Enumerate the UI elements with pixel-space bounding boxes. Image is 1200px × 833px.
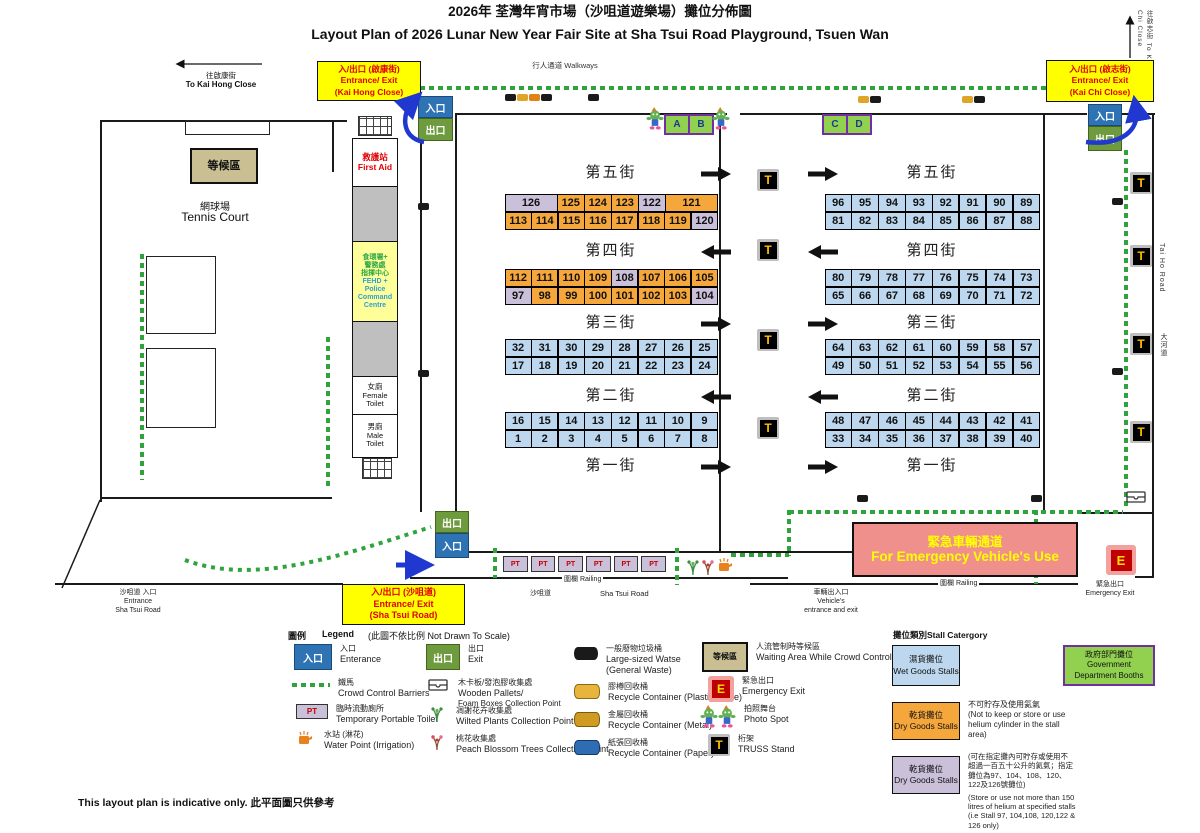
mascot-icon bbox=[718, 704, 736, 734]
legend-pt-icon: PT bbox=[296, 704, 328, 719]
stall-91: 91 bbox=[959, 194, 986, 213]
stall-80: 80 bbox=[825, 269, 852, 288]
legend-exit-zh: 出口 bbox=[468, 644, 484, 654]
stall-64: 64 bbox=[825, 339, 852, 358]
tai-ho-road-en: Tai Ho Road bbox=[1158, 243, 1165, 303]
legend-truss-t: T bbox=[711, 737, 728, 754]
legend-water-en: Water Point (Irrigation) bbox=[324, 740, 414, 751]
stall-117: 117 bbox=[611, 212, 638, 231]
stall-116: 116 bbox=[584, 212, 611, 231]
category-wet-zh: 濕貨攤位 bbox=[893, 654, 959, 665]
stall-69: 69 bbox=[932, 287, 959, 306]
door-entrance-topleft: 入口 bbox=[418, 96, 453, 118]
category-wet-goods: 濕貨攤位 Wet Goods Stalls bbox=[892, 645, 960, 686]
legend-pallets-zh: 木卡板/發泡膠收集處 bbox=[458, 678, 561, 688]
street-arrow bbox=[701, 390, 731, 409]
stall-row: 4950515253545556 bbox=[825, 357, 1040, 375]
stall-56: 56 bbox=[1013, 357, 1040, 376]
stall-23: 23 bbox=[664, 357, 691, 376]
entrance-sha-tsui-box: 入/出口 (沙咀道) Entrance/ Exit (Sha Tsui Road… bbox=[342, 584, 465, 625]
stall-row: 113114115116117118119120 bbox=[505, 212, 718, 230]
stall-grid-left-第三街: 32313029282726251718192021222324 bbox=[505, 339, 718, 375]
stall-53: 53 bbox=[932, 357, 959, 376]
legend-pallets-en1: Wooden Pallets/ bbox=[458, 688, 561, 699]
stall-88: 88 bbox=[1013, 212, 1040, 231]
legend-emergency-en: Emergency Exit bbox=[742, 686, 805, 697]
stall-row: 4847464544434241 bbox=[825, 412, 1040, 430]
legend-wilted: 凋謝花卉收集處Wilted Plants Collection Point bbox=[430, 706, 574, 728]
female-toilet: 女廁 Female Toilet bbox=[352, 376, 398, 416]
legend-peach-icon bbox=[430, 734, 448, 756]
street-direction-arrow-right bbox=[701, 167, 731, 186]
water-point-icon bbox=[716, 557, 733, 578]
stall-124: 124 bbox=[584, 194, 612, 213]
wall-segment bbox=[1135, 576, 1154, 578]
waiting-area-box: 等候區 bbox=[190, 148, 258, 184]
door-exit-bottomleft: 出口 bbox=[435, 511, 469, 533]
trash-bin-icon bbox=[541, 94, 552, 101]
crowd-barrier-line bbox=[1124, 150, 1128, 506]
stall-111: 111 bbox=[531, 269, 558, 288]
trash-bin-icon bbox=[962, 96, 973, 103]
legend-waste: 一般廢物垃圾桶Large-sized Watse(General Waste) bbox=[574, 644, 681, 677]
truss-stand: T bbox=[1130, 333, 1152, 355]
dry2-en-3: (i.e Stall 97, 104,108, 120,122 & bbox=[968, 811, 1128, 820]
legend-plastic-bin-icon bbox=[574, 684, 600, 699]
entrance-sha-tsui-left-label: 沙咀道 入口 Entrance Sha Tsui Road bbox=[100, 588, 176, 615]
crowd-barrier-line bbox=[675, 548, 679, 585]
stall-row: 8079787776757473 bbox=[825, 269, 1040, 287]
legend-barrier-icon bbox=[292, 683, 330, 687]
stall-100: 100 bbox=[584, 287, 611, 306]
stall-98: 98 bbox=[531, 287, 558, 306]
street-direction-arrow-right bbox=[808, 317, 838, 336]
truss-stand-t: T bbox=[1133, 175, 1150, 192]
legend-pt: PT 臨時流動廁所Temporary Portable Toilet bbox=[296, 704, 438, 725]
stall-40: 40 bbox=[1013, 430, 1040, 449]
vehicle-l1: 車輛出入口 bbox=[790, 588, 872, 597]
stall-108: 108 bbox=[611, 269, 638, 288]
footer-disclaimer: This layout plan is indicative only. 此平面… bbox=[78, 795, 335, 810]
wall-segment bbox=[750, 583, 1078, 585]
stall-73: 73 bbox=[1013, 269, 1040, 288]
stall-51: 51 bbox=[878, 357, 905, 376]
fehd-en-3: Command bbox=[353, 294, 397, 302]
crowd-barrier-line bbox=[140, 254, 144, 480]
stall-99: 99 bbox=[558, 287, 585, 306]
legend-water-zh: 水站 (淋花) bbox=[324, 730, 414, 740]
entrance-kai-chi-line1: 入/出口 (啟志街) bbox=[1047, 64, 1153, 75]
stall-16: 16 bbox=[505, 412, 532, 431]
stall-39: 39 bbox=[986, 430, 1013, 449]
crowd-barrier-line bbox=[420, 86, 1150, 90]
truss-stand: T bbox=[1130, 172, 1152, 194]
stall-1: 1 bbox=[505, 430, 532, 449]
category-dry2-en: Dry Goods Stalls bbox=[893, 775, 959, 786]
legend-waiting-icon: 等候區 bbox=[702, 642, 748, 672]
stall-20: 20 bbox=[584, 357, 611, 376]
stall-45: 45 bbox=[905, 412, 932, 431]
street-label: 第三街 bbox=[887, 311, 977, 332]
stall-48: 48 bbox=[825, 412, 852, 431]
stall-109: 109 bbox=[584, 269, 611, 288]
crowd-barrier-line bbox=[787, 510, 791, 556]
stall-15: 15 bbox=[531, 412, 558, 431]
truss-stand: T bbox=[757, 169, 779, 191]
legend-emergency-zh: 緊急出口 bbox=[742, 676, 805, 686]
stall-101: 101 bbox=[611, 287, 638, 306]
fehd-en-1: FEHD + bbox=[353, 278, 397, 286]
stall-12: 12 bbox=[611, 412, 638, 431]
street-direction-arrow-left bbox=[808, 245, 838, 264]
stall-19: 19 bbox=[558, 357, 585, 376]
stall-32: 32 bbox=[505, 339, 532, 358]
wall-segment bbox=[100, 497, 332, 499]
stall-11: 11 bbox=[638, 412, 665, 431]
legend-water-icon bbox=[296, 730, 316, 751]
stall-107: 107 bbox=[638, 269, 665, 288]
vehicle-l3: entrance and exit bbox=[790, 606, 872, 615]
stall-grid-left-第二街: 16151413121110912345678 bbox=[505, 412, 718, 448]
legend-photo-icon bbox=[700, 704, 736, 734]
stall-41: 41 bbox=[1013, 412, 1040, 431]
wilted-plants-point-icon bbox=[686, 559, 700, 581]
stall-123: 123 bbox=[611, 194, 639, 213]
legend-pt-zh: 臨時流動廁所 bbox=[336, 704, 438, 714]
stall-row: 979899100101102103104 bbox=[505, 287, 718, 305]
wall-segment bbox=[740, 113, 1087, 115]
stall-82: 82 bbox=[851, 212, 878, 231]
legend-waiting-zh: 人流管制時等候區 bbox=[756, 642, 892, 652]
dry2-en-2: litres of helium at specified stalls bbox=[968, 802, 1128, 811]
male-toilet: 男廁 Male Toilet bbox=[352, 414, 398, 458]
stall-grid-left-第五街: 1261251241231221211131141151161171181191… bbox=[505, 194, 718, 230]
first-aid-station: 救護站 First Aid bbox=[352, 138, 398, 188]
stall-22: 22 bbox=[638, 357, 665, 376]
legend-wilted-zh: 凋謝花卉收集處 bbox=[456, 706, 574, 716]
category-gov-en2: Department Booths bbox=[1065, 671, 1153, 681]
wall-segment bbox=[1152, 113, 1154, 577]
sha-tsui-road-en: Sha Tsui Road bbox=[600, 589, 649, 599]
truss-stand-t: T bbox=[1133, 248, 1150, 265]
stall-grid-right-第四街: 80797877767574736566676869707172 bbox=[825, 269, 1040, 305]
fehd-en-2: Police bbox=[353, 286, 397, 294]
stall-126: 126 bbox=[505, 194, 558, 213]
stall-7: 7 bbox=[664, 430, 691, 449]
trash-bin-icon bbox=[858, 96, 869, 103]
mascot-icon bbox=[700, 704, 718, 734]
stall-57: 57 bbox=[1013, 339, 1040, 358]
stall-row: 161514131211109 bbox=[505, 412, 718, 430]
entrance-sha-tsui-l1: 沙咀道 入口 bbox=[100, 588, 176, 597]
stall-120: 120 bbox=[691, 212, 718, 231]
stall-122: 122 bbox=[638, 194, 666, 213]
stall-10: 10 bbox=[664, 412, 691, 431]
sha-tsui-road-zh: 沙咀道 bbox=[530, 589, 551, 598]
legend-paper-zh: 紙張回收桶 bbox=[608, 738, 714, 748]
stall-row: 6463626160595857 bbox=[825, 339, 1040, 357]
stall-18: 18 bbox=[531, 357, 558, 376]
stall-67: 67 bbox=[878, 287, 905, 306]
door-exit-topright: 出口 bbox=[1088, 126, 1122, 151]
portable-toilet: PT bbox=[531, 556, 556, 572]
truss-stand-t: T bbox=[760, 332, 777, 349]
stall-119: 119 bbox=[664, 212, 691, 231]
mascot-photo-spot-2 bbox=[712, 106, 730, 136]
stall-35: 35 bbox=[878, 430, 905, 449]
stall-93: 93 bbox=[905, 194, 932, 213]
stall-70: 70 bbox=[959, 287, 986, 306]
stall-29: 29 bbox=[584, 339, 611, 358]
stall-61: 61 bbox=[905, 339, 932, 358]
portable-toilet: PT bbox=[558, 556, 583, 572]
court-outline bbox=[146, 348, 216, 428]
entrance-sha-tsui-l2: Entrance bbox=[100, 597, 176, 606]
category-gov-booths: 政府部門攤位 Government Department Booths bbox=[1063, 645, 1155, 686]
stall-86: 86 bbox=[959, 212, 986, 231]
legend-truss-zh: 桁架 bbox=[738, 734, 795, 744]
legend-metal-bin-icon bbox=[574, 712, 600, 727]
street-direction-arrow-left bbox=[701, 390, 731, 409]
gray-block-2 bbox=[352, 321, 398, 378]
stall-96: 96 bbox=[825, 194, 852, 213]
legend-entrance-icon: 入口 bbox=[294, 644, 332, 670]
legend-truss-en: TRUSS Stand bbox=[738, 744, 795, 755]
truss-stand: T bbox=[757, 417, 779, 439]
railing-label-left: 圍欄 Railing bbox=[562, 575, 603, 584]
street-direction-arrow-right bbox=[808, 167, 838, 186]
category-wet-en: Wet Goods Stalls bbox=[893, 666, 959, 677]
page-title-en: Layout Plan of 2026 Lunar New Year Fair … bbox=[0, 26, 1200, 42]
stall-13: 13 bbox=[584, 412, 611, 431]
legend-emergency: E 緊急出口Emergency Exit bbox=[708, 676, 805, 702]
gov-booths-ab: A B bbox=[666, 114, 714, 135]
trash-bin-icon bbox=[1031, 495, 1042, 502]
stall-37: 37 bbox=[932, 430, 959, 449]
category-gov-en1: Government bbox=[1065, 660, 1153, 670]
entrance-sha-tsui-line1: 入/出口 (沙咀道) bbox=[343, 587, 464, 599]
street-label: 第四街 bbox=[887, 239, 977, 260]
stall-2: 2 bbox=[531, 430, 558, 449]
court-outline bbox=[185, 120, 270, 135]
legend-emergency-icon: E bbox=[708, 676, 734, 702]
entrance-kai-hong-line1: 入/出口 (啟康街) bbox=[318, 64, 420, 75]
street-label: 第五街 bbox=[887, 161, 977, 182]
wall-segment bbox=[55, 583, 343, 585]
stall-row: 3334353637383940 bbox=[825, 430, 1040, 448]
stall-74: 74 bbox=[986, 269, 1013, 288]
gov-booths-cd: C D bbox=[824, 114, 872, 135]
truss-stand-t: T bbox=[760, 172, 777, 189]
walkways-label: 行人通道 Walkways bbox=[505, 60, 625, 71]
stall-52: 52 bbox=[905, 357, 932, 376]
stall-60: 60 bbox=[932, 339, 959, 358]
legend-emergency-e: E bbox=[712, 680, 730, 698]
street-label: 第一街 bbox=[887, 454, 977, 475]
stall-94: 94 bbox=[878, 194, 905, 213]
emergency-corridor-en: For Emergency Vehicle's Use bbox=[854, 549, 1076, 565]
entrance-kai-chi-line2: Entrance/ Exit bbox=[1047, 75, 1153, 86]
stall-115: 115 bbox=[558, 212, 585, 231]
legend-waste-zh: 一般廢物垃圾桶 bbox=[606, 644, 681, 654]
stall-110: 110 bbox=[558, 269, 585, 288]
stall-68: 68 bbox=[905, 287, 932, 306]
street-arrow bbox=[701, 167, 731, 186]
truss-stand-t: T bbox=[1133, 424, 1150, 441]
stall-76: 76 bbox=[932, 269, 959, 288]
dry2-zh-3: 攤位為97、104、108、120、 bbox=[968, 771, 1128, 780]
male-toilet-en2: Toilet bbox=[353, 440, 397, 449]
street-arrow bbox=[701, 245, 731, 264]
legend-metal-en: Recycle Container (Metal) bbox=[608, 720, 712, 731]
stall-50: 50 bbox=[851, 357, 878, 376]
stall-26: 26 bbox=[664, 339, 691, 358]
portable-toilet: PT bbox=[503, 556, 528, 572]
booth-c: C bbox=[822, 114, 848, 135]
emergency-exit-en: Emergency Exit bbox=[1070, 589, 1150, 598]
stall-grid-right-第二街: 48474645444342413334353637383940 bbox=[825, 412, 1040, 448]
entrance-kai-chi: 入/出口 (啟志街) Entrance/ Exit (Kai Chi Close… bbox=[1046, 60, 1154, 102]
legend-entrance-en: Enterance bbox=[340, 654, 381, 665]
street-label: 第二街 bbox=[887, 384, 977, 405]
fehd-en-4: Centre bbox=[353, 302, 397, 310]
crowd-barrier-line bbox=[493, 548, 497, 578]
trash-bin-icon bbox=[870, 96, 881, 103]
dry2-zh-2: 超過一百五十公升的氦氣；指定 bbox=[968, 761, 1128, 770]
legend-paper-en: Recycle Container (Paper) bbox=[608, 748, 714, 759]
legend-barriers-zh: 鐵馬 bbox=[338, 678, 430, 688]
truss-stand: T bbox=[1130, 421, 1152, 443]
stall-54: 54 bbox=[959, 357, 986, 376]
stall-102: 102 bbox=[638, 287, 665, 306]
page-title-zh: 2026年 荃灣年宵市場（沙咀道遊樂場）攤位分佈圖 bbox=[0, 0, 1200, 20]
peach-blossom-point-icon bbox=[701, 559, 715, 581]
dry1-note-2: (Not to keep or store or use bbox=[968, 710, 1118, 720]
dry1-note-1: 不可貯存及使用氦氣 bbox=[968, 700, 1118, 710]
street-label: 第四街 bbox=[566, 239, 656, 260]
stall-85: 85 bbox=[932, 212, 959, 231]
legend-waste-en2: (General Waste) bbox=[606, 665, 681, 676]
stall-58: 58 bbox=[986, 339, 1013, 358]
category-dry1-zh: 乾貨攤位 bbox=[893, 710, 959, 721]
legend-entrance-zh: 入口 bbox=[340, 644, 381, 654]
fehd-zh-1: 食環署+ bbox=[353, 254, 397, 262]
stall-row: 3231302928272625 bbox=[505, 339, 718, 357]
wall-segment bbox=[100, 120, 102, 502]
emergency-exit-zh: 緊急出口 bbox=[1070, 580, 1150, 589]
legend-exit-en: Exit bbox=[468, 654, 484, 665]
street-label: 第一街 bbox=[566, 454, 656, 475]
trash-bin-icon bbox=[588, 94, 599, 101]
legend-wilted-en: Wilted Plants Collection Point bbox=[456, 716, 574, 727]
emergency-corridor-zh: 緊急車輛通道 bbox=[854, 535, 1076, 549]
stall-114: 114 bbox=[531, 212, 558, 231]
stall-72: 72 bbox=[1013, 287, 1040, 306]
legend-waiting-icon-label: 等候區 bbox=[704, 652, 746, 661]
entrance-sha-tsui-line2: Entrance/ Exit bbox=[343, 599, 464, 611]
street-label: 第五街 bbox=[566, 161, 656, 182]
legend-pallet-icon bbox=[428, 678, 450, 697]
dry2-en-1: (Store or use not more than 150 bbox=[968, 793, 1128, 802]
stairs-icon-bottom bbox=[362, 458, 392, 479]
legend-truss: T 桁架TRUSS Stand bbox=[708, 734, 795, 756]
street-direction-arrow-right bbox=[701, 460, 731, 479]
stall-105: 105 bbox=[691, 269, 718, 288]
stall-4: 4 bbox=[584, 430, 611, 449]
vehicle-l2: Vehicle's bbox=[790, 597, 872, 606]
crowd-barrier-line bbox=[326, 337, 330, 490]
stall-104: 104 bbox=[691, 287, 718, 306]
legend-title-zh: 圖例 bbox=[288, 629, 306, 642]
door-entrance-bottomleft: 入口 bbox=[435, 533, 469, 558]
category-dry1-note: 不可貯存及使用氦氣 (Not to keep or store or use h… bbox=[968, 700, 1118, 740]
stall-87: 87 bbox=[986, 212, 1013, 231]
street-arrow bbox=[808, 460, 838, 479]
dry2-en-4: 126 only) bbox=[968, 821, 1128, 830]
entrance-kai-hong-line2: Entrance/ Exit bbox=[318, 75, 420, 86]
trash-bin-icon bbox=[857, 495, 868, 502]
entrance-sha-tsui-line3: (Sha Tsui Road) bbox=[343, 610, 464, 622]
legend-title-en: Legend bbox=[322, 629, 354, 639]
stairs-icon bbox=[358, 116, 392, 136]
stall-113: 113 bbox=[505, 212, 532, 231]
court-outline bbox=[146, 256, 216, 334]
legend-scale-note: (此圖不依比例 Not Drawn To Scale) bbox=[368, 629, 510, 642]
truss-stand-t: T bbox=[760, 420, 777, 437]
street-arrow bbox=[808, 167, 838, 186]
legend-pt-en: Temporary Portable Toilet bbox=[336, 714, 438, 725]
fehd-zh-3: 指揮中心 bbox=[353, 270, 397, 278]
stall-78: 78 bbox=[878, 269, 905, 288]
fehd-police-centre: 食環署+ 警務處 指揮中心 FEHD + Police Command Cent… bbox=[352, 241, 398, 323]
legend-photo: 拍照舞台Photo Spot bbox=[700, 704, 789, 734]
trash-bin-icon bbox=[1112, 368, 1123, 375]
trash-bin-icon bbox=[1112, 198, 1123, 205]
wall-segment bbox=[1043, 113, 1045, 513]
wall-segment bbox=[1120, 113, 1155, 115]
category-dry2-note: (可在指定攤內可貯存或使用不 超過一百五十公升的氦氣；指定 攤位為97、104、… bbox=[968, 752, 1128, 830]
stall-84: 84 bbox=[905, 212, 932, 231]
tennis-court-en: Tennis Court bbox=[155, 210, 275, 224]
emergency-exit-label: 緊急出口 Emergency Exit bbox=[1070, 580, 1150, 598]
stall-31: 31 bbox=[531, 339, 558, 358]
dry1-note-3: helium cylinder in the stall bbox=[968, 720, 1118, 730]
stall-71: 71 bbox=[986, 287, 1013, 306]
wall-segment bbox=[455, 113, 457, 513]
stall-27: 27 bbox=[638, 339, 665, 358]
gray-block-1 bbox=[352, 186, 398, 243]
street-direction-arrow-left bbox=[701, 245, 731, 264]
entrance-sha-tsui-l3: Sha Tsui Road bbox=[100, 606, 176, 615]
first-aid-en: First Aid bbox=[353, 163, 397, 173]
stall-44: 44 bbox=[932, 412, 959, 431]
truss-stand-t: T bbox=[1133, 336, 1150, 353]
portable-toilet: PT bbox=[614, 556, 639, 572]
tai-ho-road-zh: 大河道 bbox=[1158, 333, 1168, 373]
stall-row: 126125124123122121 bbox=[505, 194, 718, 212]
legend-exit-icon: 出口 bbox=[426, 644, 460, 670]
truss-stand-t: T bbox=[760, 242, 777, 259]
legend-wilted-icon bbox=[430, 706, 448, 728]
stall-3: 3 bbox=[558, 430, 585, 449]
stall-8: 8 bbox=[691, 430, 718, 449]
stall-21: 21 bbox=[611, 357, 638, 376]
legend-water: 水站 (淋花)Water Point (Irrigation) bbox=[296, 730, 414, 751]
dry2-zh-1: (可在指定攤內可貯存或使用不 bbox=[968, 752, 1128, 761]
wooden-pallet-point-icon bbox=[1126, 490, 1146, 509]
legend-photo-en: Photo Spot bbox=[744, 714, 789, 725]
portable-toilet: PT bbox=[586, 556, 611, 572]
